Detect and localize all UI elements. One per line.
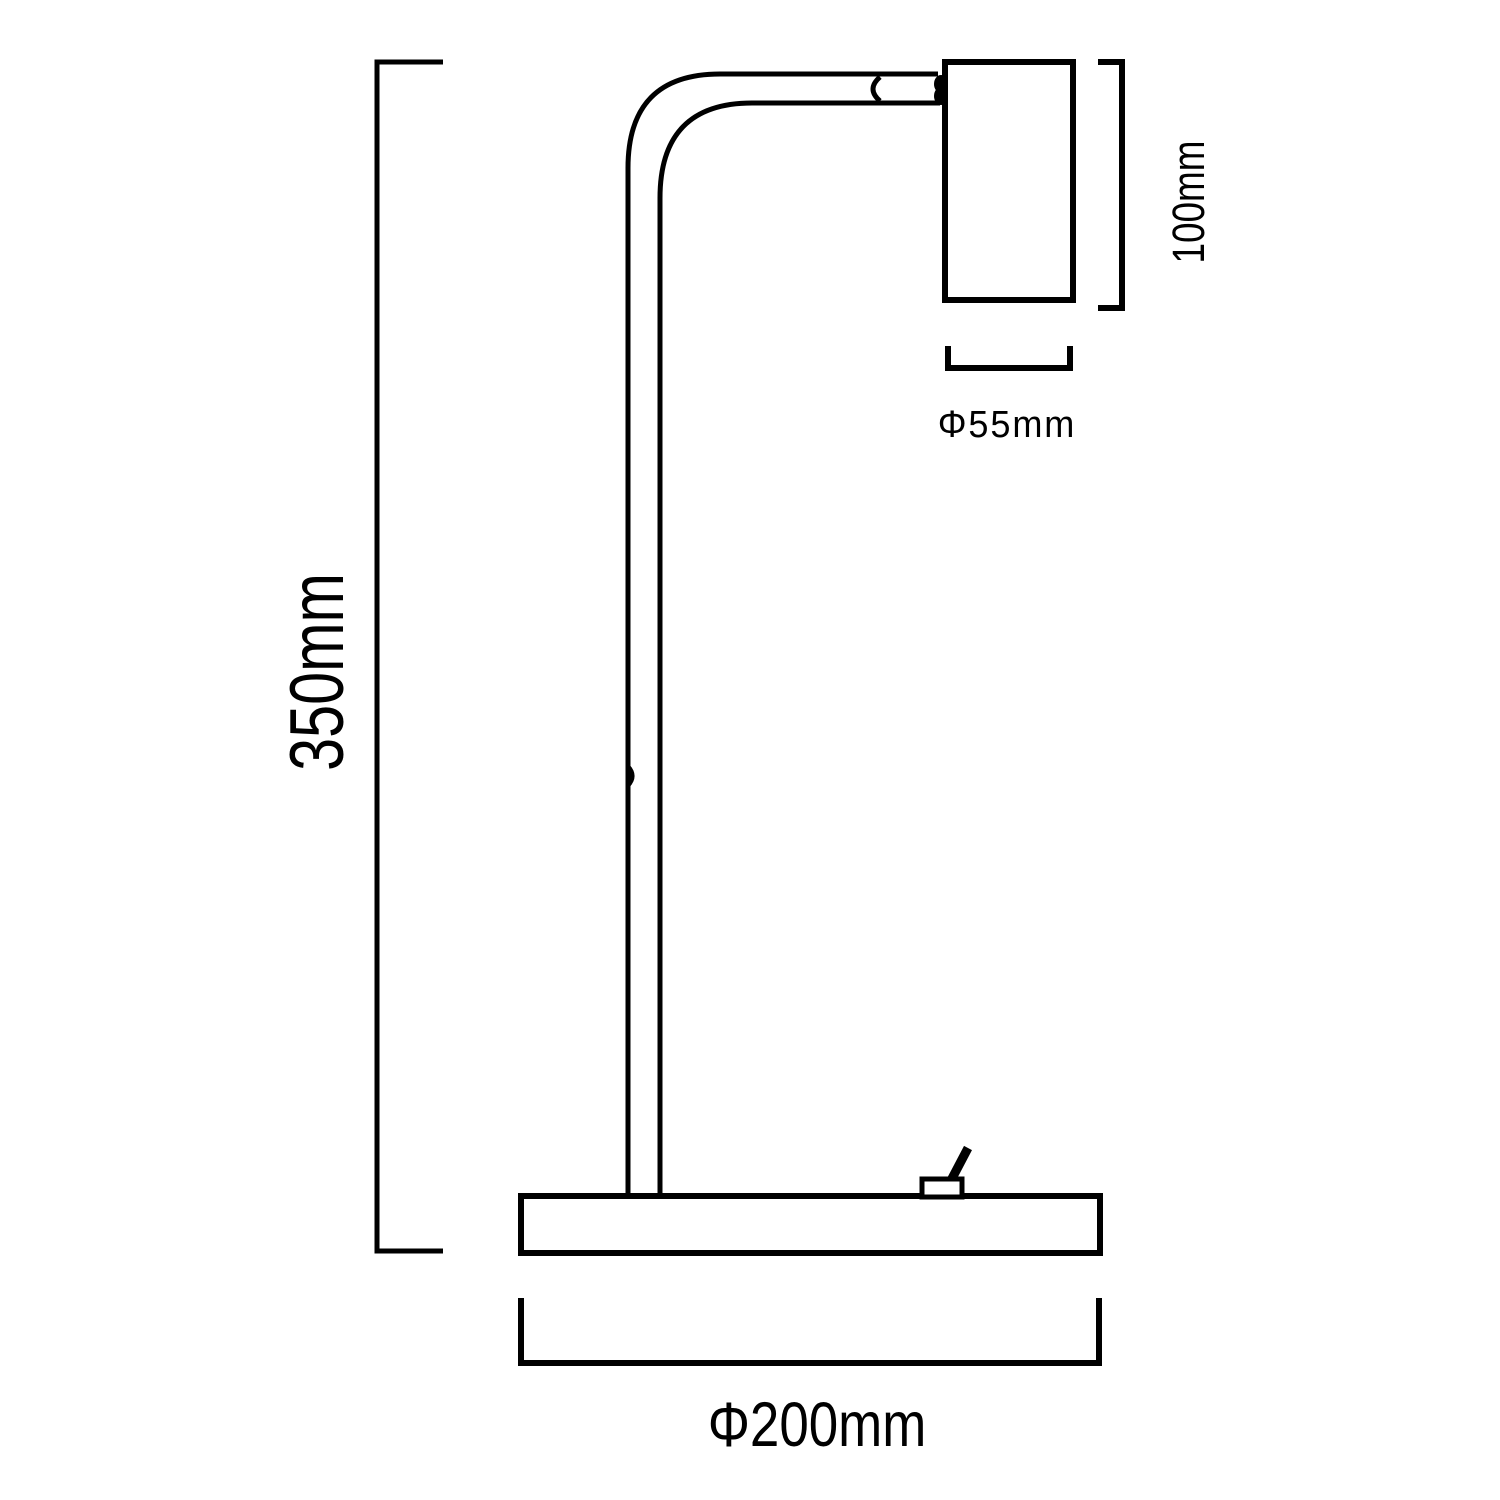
base-diameter-dimension-line <box>521 1298 1099 1363</box>
height-dimension-label: 350mm <box>275 573 360 771</box>
lamp-pole-outer-line <box>628 74 938 1198</box>
power-switch <box>922 1179 962 1197</box>
head-diameter-dimension-label: Φ55mm <box>938 402 1077 445</box>
lamp-dimension-diagram: 350mm 100mm Φ55mm Φ200mm <box>0 0 1500 1500</box>
head-height-dimension-line <box>1098 62 1122 308</box>
head-diameter-dimension-line <box>948 346 1070 368</box>
base-diameter-dimension-label: Φ200mm <box>708 1390 927 1460</box>
height-dimension-line <box>377 62 443 1251</box>
lamp-pole-inner-line <box>660 103 940 1198</box>
head-height-dimension-label: 100mm <box>1164 141 1214 264</box>
diagram-svg: 350mm 100mm Φ55mm Φ200mm <box>0 0 1500 1500</box>
lamp-head <box>945 62 1073 300</box>
lamp-base <box>521 1196 1100 1253</box>
arm-joint-cap-line <box>873 77 880 101</box>
